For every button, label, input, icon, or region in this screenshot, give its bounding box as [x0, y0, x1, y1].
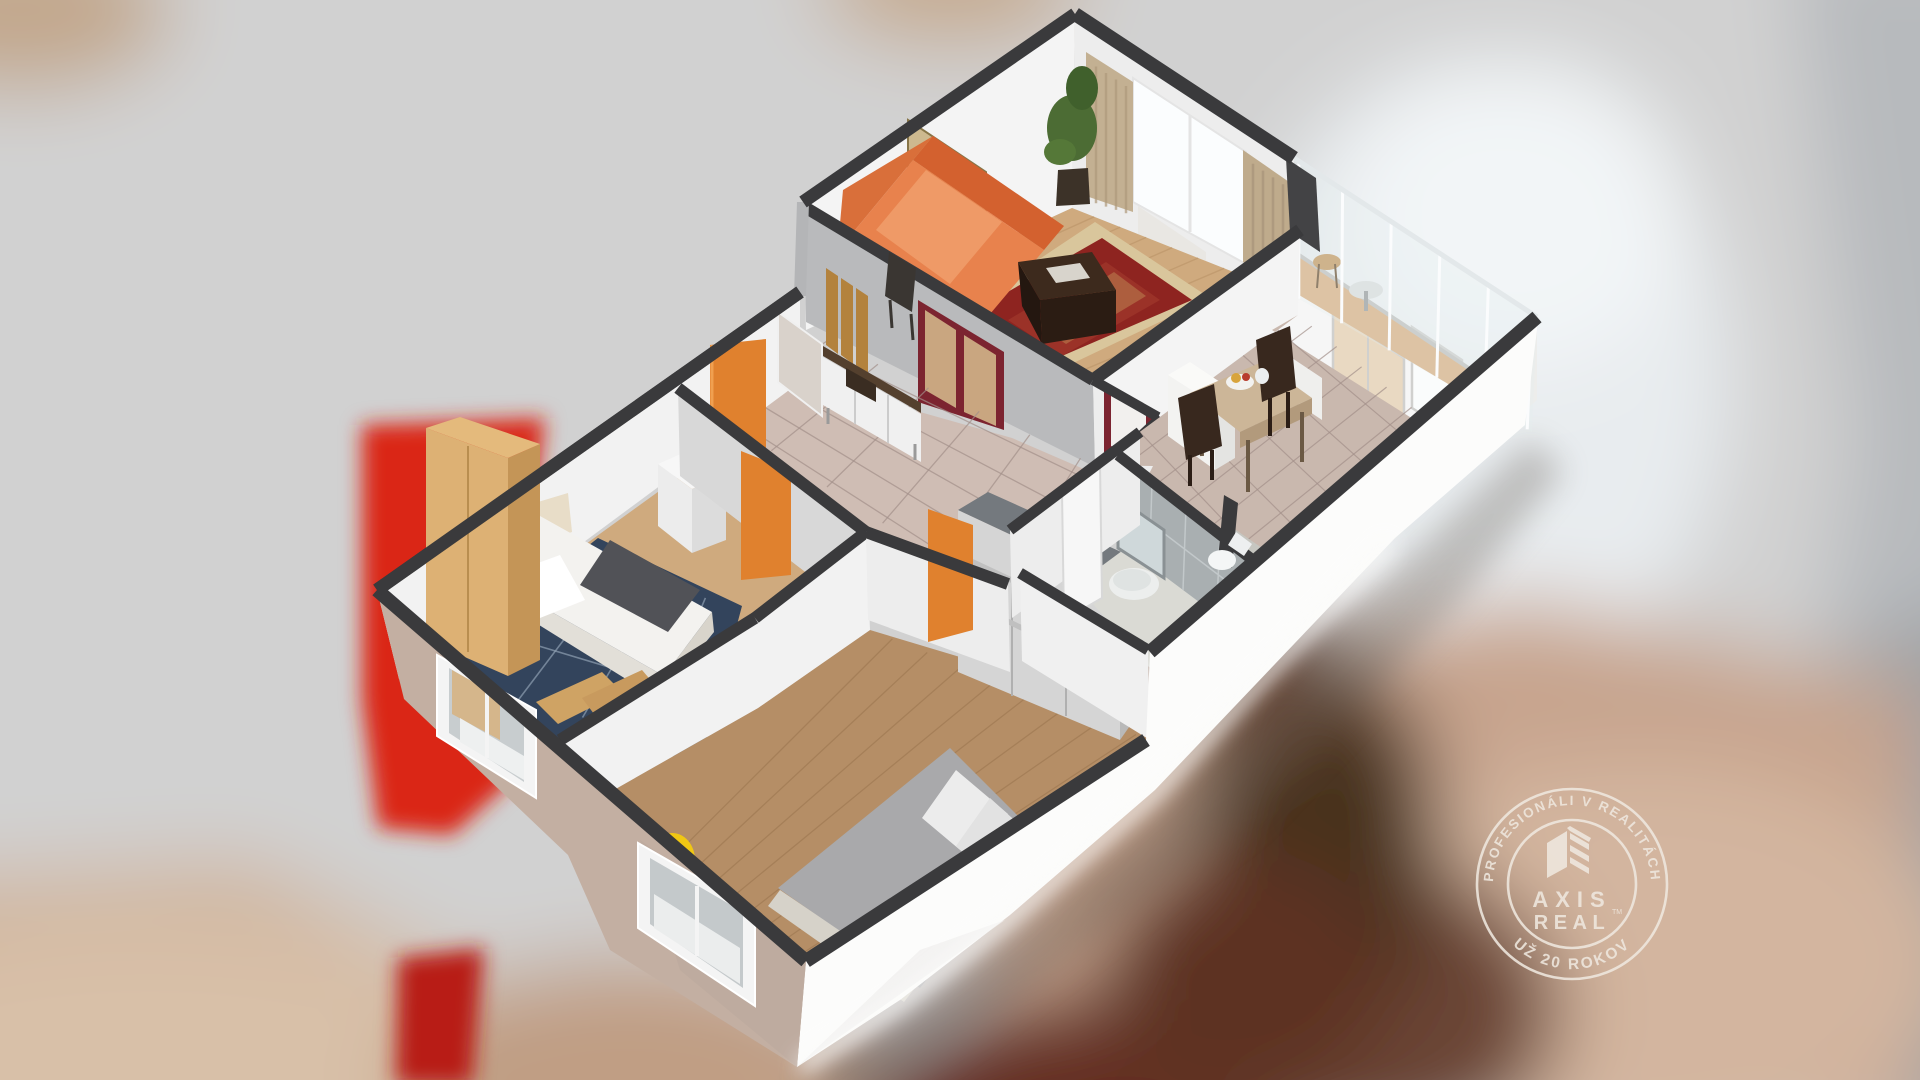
svg-text:AXIS: AXIS — [1532, 887, 1611, 912]
svg-text:TM: TM — [1612, 909, 1622, 916]
svg-text:REAL: REAL — [1534, 912, 1610, 934]
